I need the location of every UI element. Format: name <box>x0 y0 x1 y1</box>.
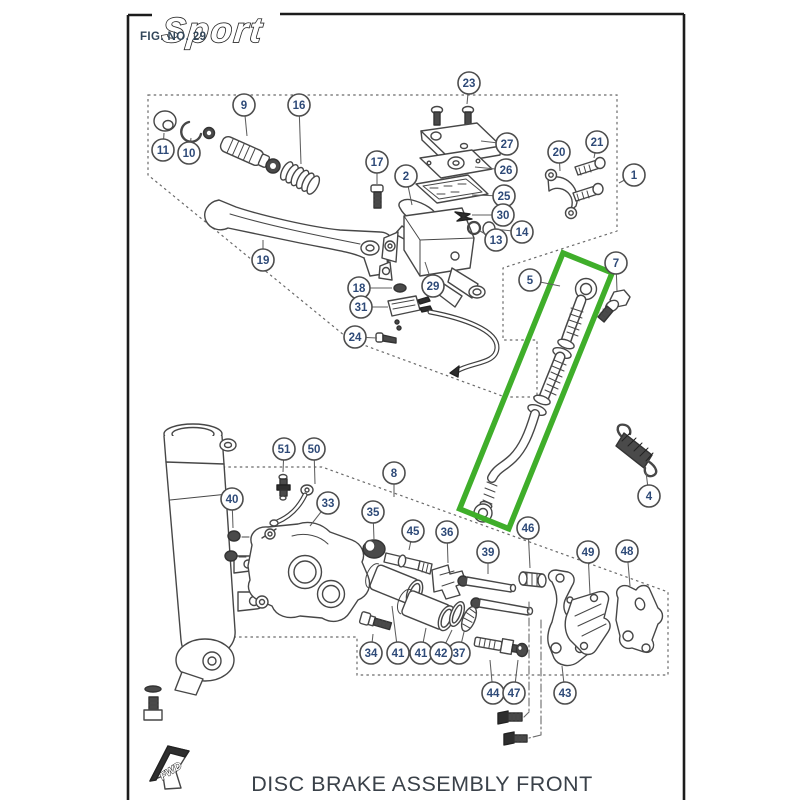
callout-47-number: 47 <box>508 688 521 700</box>
callout-34-number: 34 <box>365 648 378 660</box>
part-grommet-18 <box>394 284 406 292</box>
part-brake-switch <box>388 296 497 377</box>
figure-title: DISC BRAKE ASSEMBLY FRONT <box>251 772 592 796</box>
part-nut-47 <box>517 644 528 657</box>
callout-23-number: 23 <box>463 78 476 90</box>
callout-29-number: 29 <box>427 281 440 293</box>
part-bleeder-cap <box>270 485 313 526</box>
part-screw-24 <box>376 333 396 343</box>
callout-51-number: 51 <box>278 444 291 456</box>
callout-7-number: 7 <box>613 258 619 270</box>
callout-1-number: 1 <box>631 170 638 182</box>
callout-8-number: 8 <box>391 468 398 480</box>
callout-5-number: 5 <box>527 275 534 287</box>
callout-50-number: 50 <box>308 444 321 456</box>
callout-16-number: 16 <box>293 100 306 112</box>
callout-25-number: 25 <box>498 191 511 203</box>
figure-number-label: FIG. NO. 29 <box>140 31 206 43</box>
callout-41-number: 41 <box>392 648 405 660</box>
part-handlebar-clamp <box>546 170 578 219</box>
part-bolt-34 <box>359 611 392 631</box>
callout-20-number: 20 <box>553 147 566 159</box>
part-clamp-bolts <box>573 158 605 202</box>
callout-10-number: 10 <box>183 148 196 160</box>
callout-44-number: 44 <box>487 688 500 700</box>
part-return-spring <box>616 425 656 477</box>
callout-11-number: 11 <box>157 145 170 157</box>
callout-41-number: 41 <box>415 648 428 660</box>
callout-33-number: 33 <box>322 498 335 510</box>
part-fork-leg <box>144 424 265 720</box>
part-bushing-46 <box>519 572 546 587</box>
callout-43-number: 43 <box>559 688 572 700</box>
callout-26-number: 26 <box>500 165 513 177</box>
callout-49-number: 49 <box>582 547 595 559</box>
part-piston-seal-35 <box>363 540 385 558</box>
callout-27-number: 27 <box>501 139 514 151</box>
callout-37-number: 37 <box>453 648 466 660</box>
part-spring-16 <box>278 160 322 196</box>
callout-4-number: 4 <box>646 491 653 503</box>
part-brake-lever <box>205 200 393 276</box>
callout-30-number: 30 <box>497 210 510 222</box>
callout-45-number: 45 <box>407 526 420 538</box>
part-pivot-bolt <box>371 185 383 208</box>
callout-9-number: 9 <box>241 100 247 112</box>
callout-39-number: 39 <box>482 547 495 559</box>
part-bleed-valve <box>277 475 290 501</box>
callout-46-number: 46 <box>522 523 535 535</box>
callout-19-number: 19 <box>257 255 270 267</box>
part-bracket-bolt-44 <box>474 634 523 656</box>
callout-21-number: 21 <box>591 137 604 149</box>
callout-24-number: 24 <box>349 332 362 344</box>
part-mounting-bolts <box>498 602 541 745</box>
callout-35-number: 35 <box>367 507 380 519</box>
part-brake-pad-48 <box>616 586 663 653</box>
callout-40-number: 40 <box>226 494 239 506</box>
catalog-page: Sport FIG. NO. 29 <box>0 0 800 800</box>
part-caliper-body <box>248 522 370 621</box>
callout-13-number: 13 <box>490 235 503 247</box>
callout-18-number: 18 <box>353 283 366 295</box>
diagram-canvas: Sport FIG. NO. 29 <box>0 0 800 800</box>
callout-42-number: 42 <box>435 648 448 660</box>
callout-31-number: 31 <box>355 302 368 314</box>
callout-2-number: 2 <box>403 171 409 183</box>
callout-48-number: 48 <box>621 546 634 558</box>
callout-36-number: 36 <box>441 527 454 539</box>
callout-14-number: 14 <box>516 227 529 239</box>
callout-17-number: 17 <box>371 157 384 169</box>
